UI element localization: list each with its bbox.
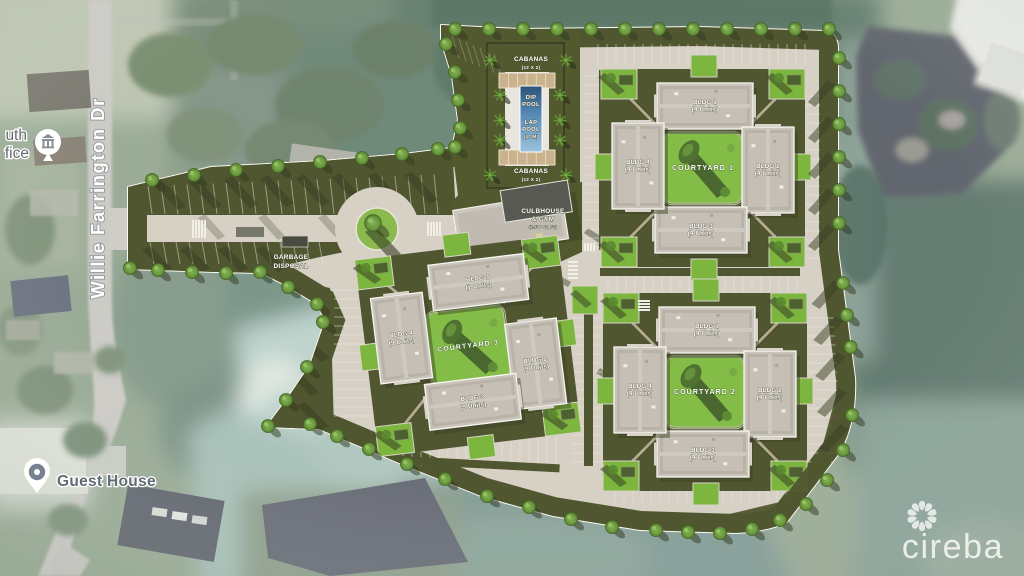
- svg-text:POOL: POOL: [522, 102, 540, 108]
- svg-text:(7,500 SQ FT): (7,500 SQ FT): [529, 225, 558, 229]
- svg-text:(9 Units): (9 Units): [694, 331, 721, 338]
- svg-text:CULBHOUSE: CULBHOUSE: [521, 208, 565, 215]
- svg-text:Guest House: Guest House: [57, 473, 156, 490]
- svg-text:(9 Units): (9 Units): [625, 167, 652, 174]
- svg-text:(9 Units): (9 Units): [755, 171, 782, 178]
- svg-text:COURTYARD 1: COURTYARD 1: [672, 165, 734, 172]
- svg-text:(12 X 2): (12 X 2): [522, 65, 541, 70]
- svg-text:(12 X 2): (12 X 2): [522, 177, 541, 182]
- svg-text:DISPOSAL: DISPOSAL: [273, 263, 308, 270]
- svg-text:(40 M): (40 M): [524, 134, 539, 139]
- svg-text:LAP: LAP: [525, 120, 538, 126]
- svg-text:BLDG 4: BLDG 4: [628, 383, 652, 390]
- svg-text:uth: uth: [5, 127, 27, 144]
- svg-text:POOL: POOL: [522, 127, 540, 133]
- svg-text:Willie Farrington Dr: Willie Farrington Dr: [87, 97, 108, 298]
- svg-text:GARBAGE: GARBAGE: [274, 254, 309, 261]
- svg-text:& GYM: & GYM: [532, 216, 554, 223]
- svg-text:CABANAS: CABANAS: [514, 56, 548, 63]
- svg-text:BLDG 1: BLDG 1: [695, 323, 719, 330]
- svg-text:BLDG 3: BLDG 3: [689, 223, 713, 230]
- svg-text:(9 Units): (9 Units): [690, 455, 717, 462]
- svg-text:BLDG 2: BLDG 2: [756, 163, 780, 170]
- svg-text:CABANAS: CABANAS: [514, 168, 548, 175]
- svg-text:BLDG 2: BLDG 2: [758, 387, 782, 394]
- svg-text:BLDG 1: BLDG 1: [693, 99, 717, 106]
- svg-text:(9 Units): (9 Units): [627, 391, 654, 398]
- svg-text:COURTYARD 2: COURTYARD 2: [674, 389, 736, 396]
- svg-text:(9 Units): (9 Units): [688, 231, 715, 238]
- svg-text:DIP: DIP: [526, 95, 537, 101]
- svg-text:fice: fice: [5, 145, 29, 162]
- svg-text:(9 Units): (9 Units): [757, 395, 784, 402]
- svg-text:cireba: cireba: [902, 528, 1004, 566]
- svg-text:BLDG 4: BLDG 4: [626, 159, 650, 166]
- svg-text:(9 Units): (9 Units): [692, 107, 719, 114]
- svg-text:BLDG 3: BLDG 3: [691, 447, 715, 454]
